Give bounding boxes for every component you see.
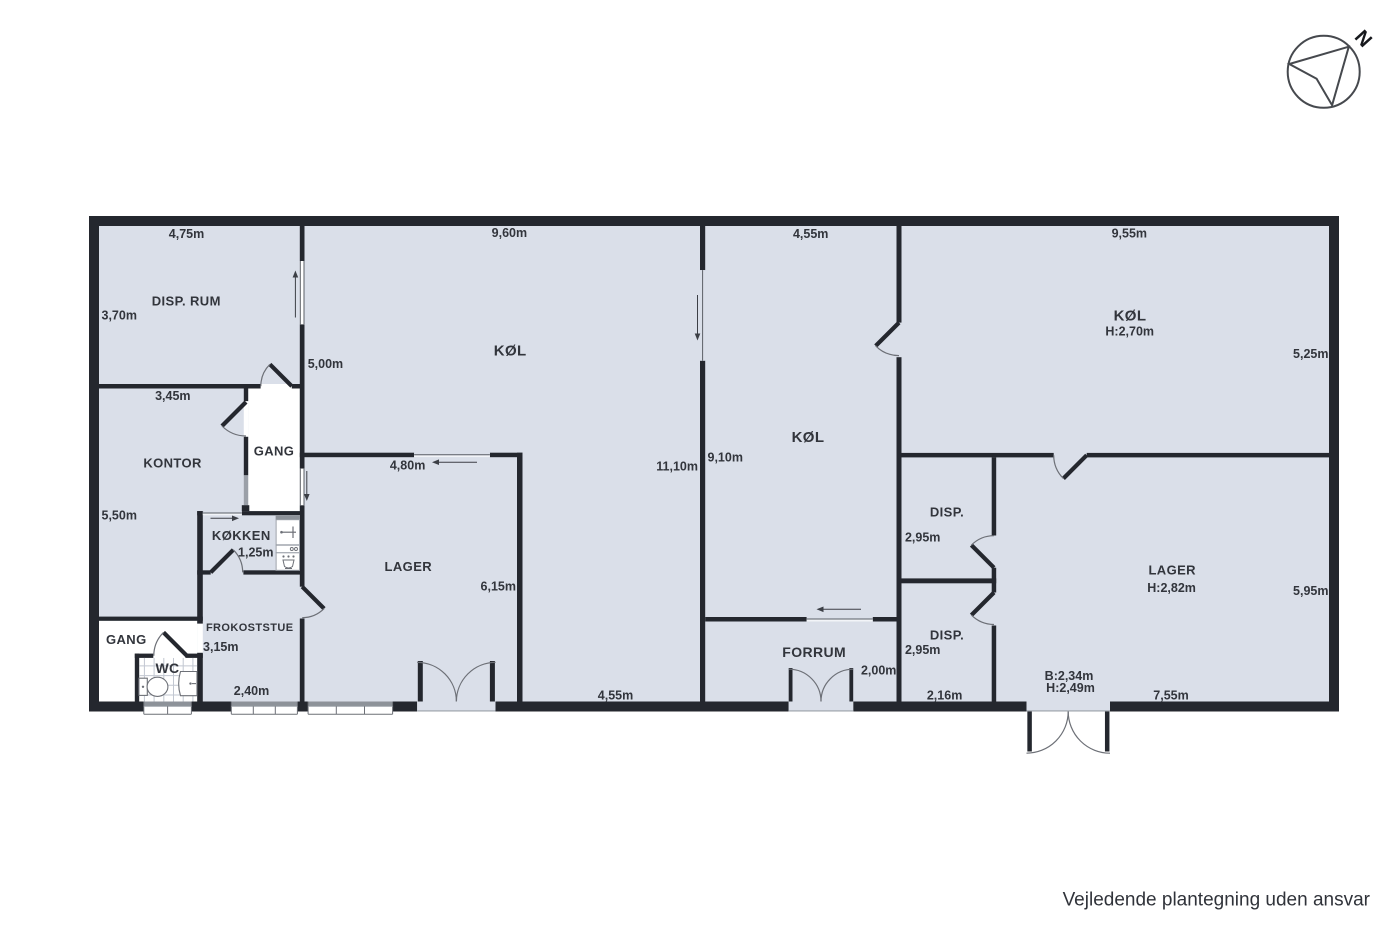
svg-text:KØL: KØL — [494, 342, 527, 359]
svg-text:H:2,82m: H:2,82m — [1147, 581, 1196, 595]
svg-text:11,10m: 11,10m — [656, 460, 698, 474]
svg-text:3,70m: 3,70m — [102, 309, 137, 323]
svg-text:H:2,49m: H:2,49m — [1046, 681, 1095, 695]
svg-text:7,55m: 7,55m — [1153, 689, 1188, 703]
svg-text:2,40m: 2,40m — [234, 684, 269, 698]
svg-text:KØL: KØL — [792, 429, 825, 446]
svg-text:4,55m: 4,55m — [793, 227, 828, 241]
svg-text:4,75m: 4,75m — [169, 227, 204, 241]
svg-text:1,25m: 1,25m — [238, 546, 273, 560]
svg-text:5,25m: 5,25m — [1293, 347, 1328, 361]
svg-text:2,95m: 2,95m — [905, 643, 940, 657]
svg-text:KØKKEN: KØKKEN — [212, 528, 271, 543]
svg-text:KONTOR: KONTOR — [143, 456, 202, 471]
svg-text:Vejledende plantegning uden an: Vejledende plantegning uden ansvar — [1063, 890, 1371, 911]
svg-text:FROKOSTSTUE: FROKOSTSTUE — [206, 622, 294, 634]
svg-text:2,00m: 2,00m — [861, 664, 896, 678]
svg-text:DISP.: DISP. — [930, 505, 964, 520]
svg-text:3,45m: 3,45m — [155, 389, 190, 403]
svg-text:4,80m: 4,80m — [390, 458, 425, 472]
svg-text:3,15m: 3,15m — [203, 640, 238, 654]
svg-text:5,00m: 5,00m — [308, 357, 343, 371]
svg-text:2,95m: 2,95m — [905, 531, 940, 545]
svg-text:KØL: KØL — [1114, 308, 1147, 325]
svg-text:WC: WC — [155, 660, 179, 676]
svg-text:9,55m: 9,55m — [1112, 226, 1147, 240]
svg-text:LAGER: LAGER — [385, 559, 433, 574]
svg-text:GANG: GANG — [106, 632, 147, 647]
svg-text:2,16m: 2,16m — [927, 689, 962, 703]
svg-text:9,10m: 9,10m — [708, 451, 743, 465]
svg-text:GANG: GANG — [254, 444, 295, 459]
svg-text:6,15m: 6,15m — [481, 579, 516, 593]
svg-text:FORRUM: FORRUM — [782, 644, 846, 660]
svg-text:4,55m: 4,55m — [598, 689, 633, 703]
svg-text:5,95m: 5,95m — [1293, 584, 1328, 598]
svg-text:DISP.: DISP. — [930, 628, 964, 643]
svg-text:5,50m: 5,50m — [102, 509, 137, 523]
svg-text:H:2,70m: H:2,70m — [1105, 325, 1154, 339]
svg-text:DISP. RUM: DISP. RUM — [152, 294, 221, 309]
svg-text:LAGER: LAGER — [1148, 563, 1196, 578]
svg-text:9,60m: 9,60m — [492, 226, 527, 240]
